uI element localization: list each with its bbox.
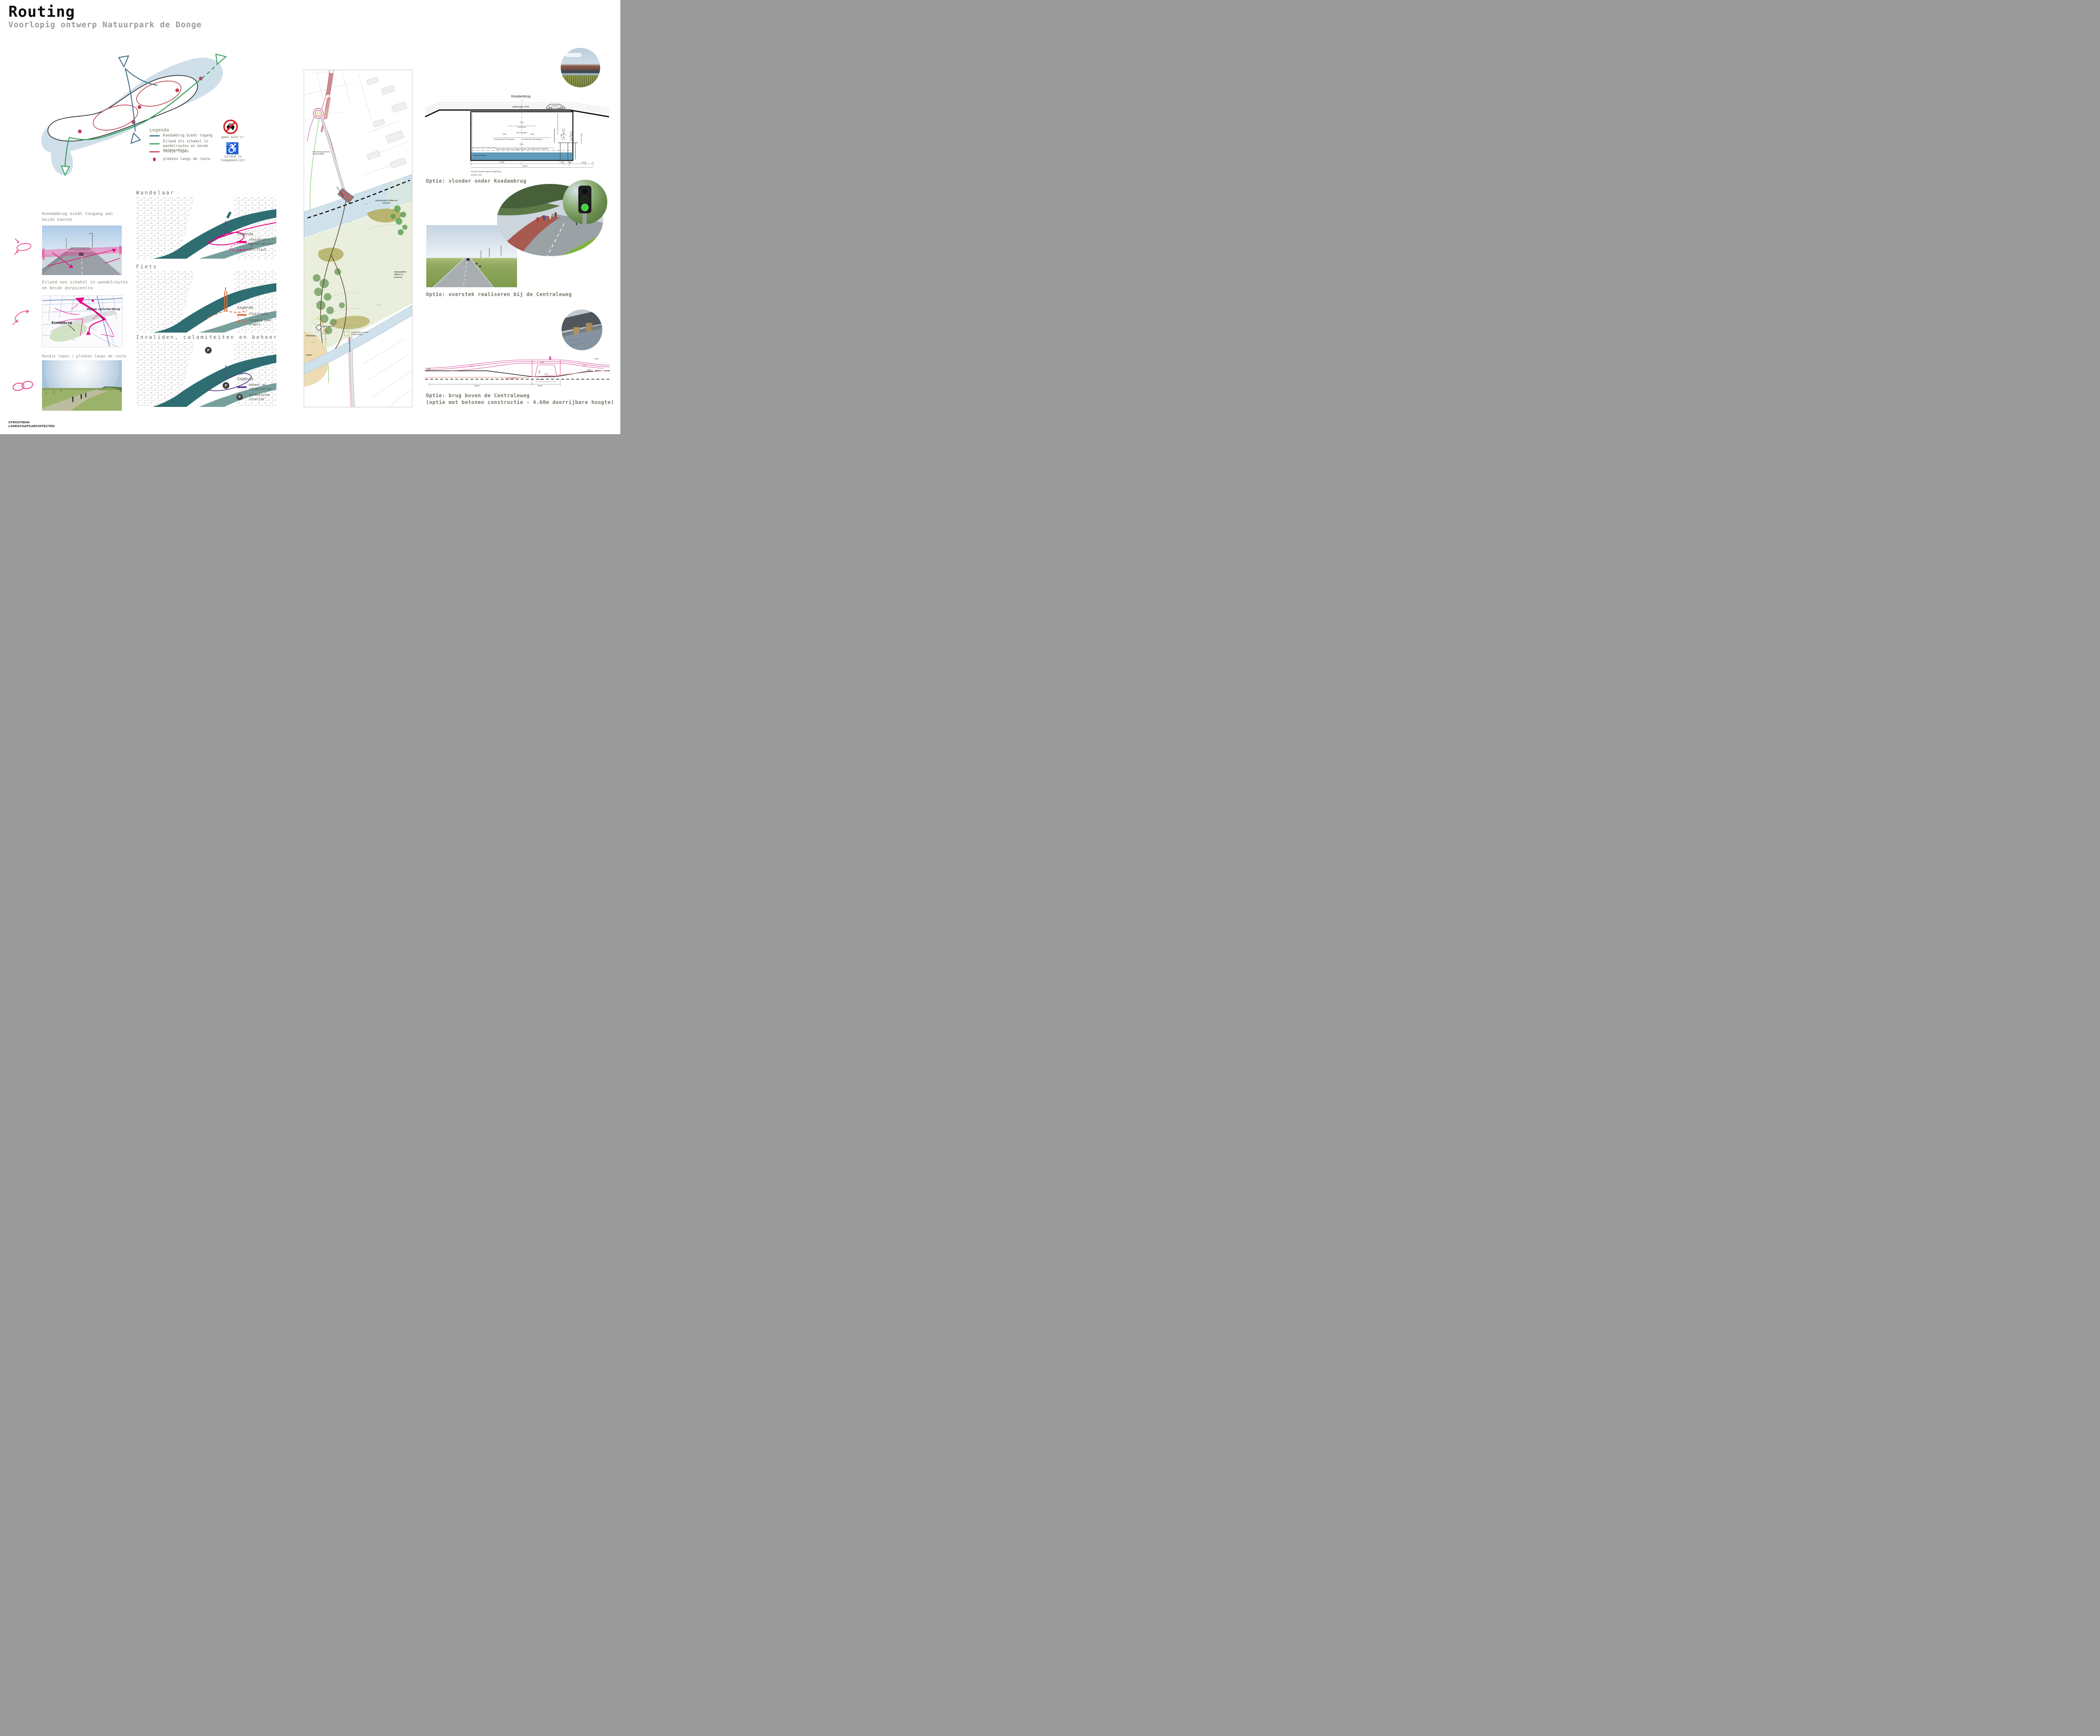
vlonder-drawing — [425, 93, 610, 169]
label-parkeerplek: parkeerplek invalide — [249, 393, 278, 401]
brug-pct-left: 4% — [470, 365, 473, 368]
page-subtitle: Voorlopig ontwerp Natuurpark de Donge — [8, 20, 202, 29]
dim-300: 3,00 — [568, 161, 572, 163]
label-fietsroute: fietsroute — [249, 312, 278, 316]
label-recreatievaart-l: recreatievaart BM categorie — [492, 139, 517, 141]
dim-100-b: 1,00 — [581, 161, 585, 163]
logo-strootman: STROOTMAN LANDSCHAPSARCHITECTEN — [8, 421, 55, 428]
map-label-koedambrug: Koedambrug — [52, 321, 72, 325]
loop-walk-icon — [11, 379, 35, 393]
plan-contour-150: +1.50 — [311, 341, 315, 344]
dim-450-r: 4,50 — [526, 133, 538, 135]
option-overstek: Optie: overstek realiseren bij de Centra… — [426, 291, 572, 297]
dim-1500: 15,00 — [493, 161, 510, 163]
plan-label-reservering-bottom: reservering parkeren mindervaliden — [351, 331, 370, 336]
reeds-texture — [561, 75, 600, 87]
poster-routing: Routing Voorlopig ontwerp Natuurpark de … — [0, 0, 620, 434]
photo-koedambrug-distance — [561, 48, 600, 87]
legend-swatch-bridge — [150, 135, 160, 136]
plan-map: reservering parkeren mindervaliden Centr… — [304, 70, 412, 407]
dim-904: 9,04 — [509, 143, 534, 145]
label-voetgangers: voetgangers + mindervaliden — [249, 238, 278, 246]
photo-traffic-light — [563, 180, 607, 224]
dim-450-l: 4,50 — [498, 133, 511, 135]
brug-drawing — [425, 354, 610, 388]
option-brug-line1: Optie: brug boven de Centraleweg — [426, 393, 530, 399]
plan-contour-250: +2.50 — [312, 323, 317, 325]
accessible-caption: eiland is toegankelijk! — [212, 155, 254, 162]
label-fauna: fauna passage — [580, 133, 583, 144]
cloud — [565, 53, 582, 57]
brug-dim-380-r: 3.80 — [587, 369, 591, 371]
heading-invaliden: Invaliden, calamiteiten en beheer — [136, 334, 278, 340]
dim-2000: 20,00 — [517, 165, 533, 167]
legend-swatch-spots — [153, 157, 156, 161]
legend-title-invaliden: Legenda — [237, 377, 253, 382]
left-section1-title: Koedambrug biedt toegang aan beide kante… — [42, 211, 126, 223]
logo-line2: LANDSCHAPSARCHITECTEN — [8, 425, 55, 428]
swatch-toegang — [237, 321, 247, 323]
label-offtrack: off-track — [249, 248, 278, 252]
p-badge-2: P — [225, 384, 227, 388]
wheelchair-icon: ♿ — [226, 142, 239, 155]
photo-bridge-underside — [562, 309, 602, 350]
plan-label-kiosk: kiosk fase 2 — [323, 325, 335, 328]
brug-dim-380-l: 3.80 — [427, 368, 430, 370]
p-badge-legend: P — [236, 394, 243, 400]
heading-fiets: Fiets — [136, 264, 157, 270]
plan-label-natuurgebied-b: natuurgebied slikken en schorren — [394, 271, 412, 279]
option-vlonder: Optie: vlonder onder Koedambrug — [426, 178, 526, 184]
island-link-icon — [11, 305, 34, 325]
brug-pct-right: 4% — [583, 365, 587, 367]
swatch-fietsroute — [237, 314, 247, 316]
brug-dim-5000: 50,00 — [475, 385, 479, 387]
option-brug-line2: (optie met betonen constructie - 4.60m d… — [426, 399, 614, 405]
photo-koedambrug-road — [42, 226, 122, 275]
swatch-voetgangers — [237, 241, 247, 243]
map-label-letschertbrug: Willem Letschertbrug — [87, 307, 120, 311]
label-beheer: beheer en calamiteiten — [249, 383, 278, 391]
access-both-sides-icon — [12, 237, 34, 256]
vlonder-title: Koedambrug — [496, 94, 546, 98]
label-baggerschip: Reservering ruimte voor baggerschip type… — [487, 148, 556, 150]
dim-420: 4,20 — [513, 121, 530, 123]
swatch-offtrack — [237, 249, 247, 250]
left-section3-title: Rondje lopen / plekken langs de route — [42, 354, 143, 359]
dim-130: 1,30 — [560, 134, 562, 138]
p-badge-1: P — [207, 349, 210, 352]
plan-label-strand: strand — [306, 354, 312, 357]
brug-dim-660: 6.60 — [540, 361, 544, 363]
plan-label-natuurgebied-a: natuurgebied slikken en schorren — [371, 199, 402, 205]
dim-100-a: 1,00 — [559, 161, 563, 163]
vlonder-caption2: schaal 1:100 — [471, 174, 482, 176]
label-waterniveau: gemiddelde waterniveau +0.40 — [472, 147, 496, 149]
label-bescherming: bescherming van de vlonder - n.t.b. — [557, 108, 559, 134]
brug-dim-1305: 13,05 — [538, 385, 542, 387]
plan-label-fietsnietjes: fietsnietjes — [306, 335, 316, 337]
plan-label-reservering-top: reservering parkeren mindervaliden — [312, 151, 337, 155]
photo-walkers-path — [42, 360, 122, 411]
brug-dim-460: 4.60 — [538, 370, 541, 374]
no-cars-caption: geen auto's! — [220, 135, 245, 139]
no-cars-icon — [223, 119, 238, 134]
brug-dim-785: 7,85 — [538, 378, 542, 380]
legend-title-fiets: Legenda — [237, 306, 253, 311]
label-bunkerboot: bunkerboot — [513, 126, 530, 128]
legend-swatch-loop — [150, 151, 160, 152]
legend-swatch-island — [150, 143, 160, 144]
plan-contour-100: +1.00 — [323, 338, 327, 340]
heading-wandelaar: Wandelaar — [136, 190, 175, 196]
page-title: Routing — [8, 3, 75, 21]
brug-dim-110: 1.10 — [544, 373, 548, 375]
left-section2-title: Eiland een schakel in wandelroutes en be… — [42, 280, 130, 291]
label-diepte: diepte onbekend — [474, 155, 486, 157]
brug-dim-580: 5.80 — [595, 358, 598, 360]
vlonder-dekhoogte: dekhoogte: 6.50 — [500, 106, 542, 108]
map-city-routes: Koedambrug Willem Letschertbrug 15 mins … — [42, 295, 123, 347]
concept-legend-title: Legenda — [150, 127, 169, 133]
legend-title-wandelaar: Legenda — [237, 232, 253, 237]
vlonder-caption1: Principe vlonder onder Koedambrug — [471, 170, 501, 173]
label-recreatievaart-r: recreatievaart BM categorie — [520, 139, 544, 141]
dim-558: 5,58 — [470, 122, 472, 126]
label-toegang: toegang naar plaats — [249, 318, 278, 327]
swatch-beheer — [237, 386, 247, 388]
plan-contour-200: +2.00 — [315, 330, 319, 333]
